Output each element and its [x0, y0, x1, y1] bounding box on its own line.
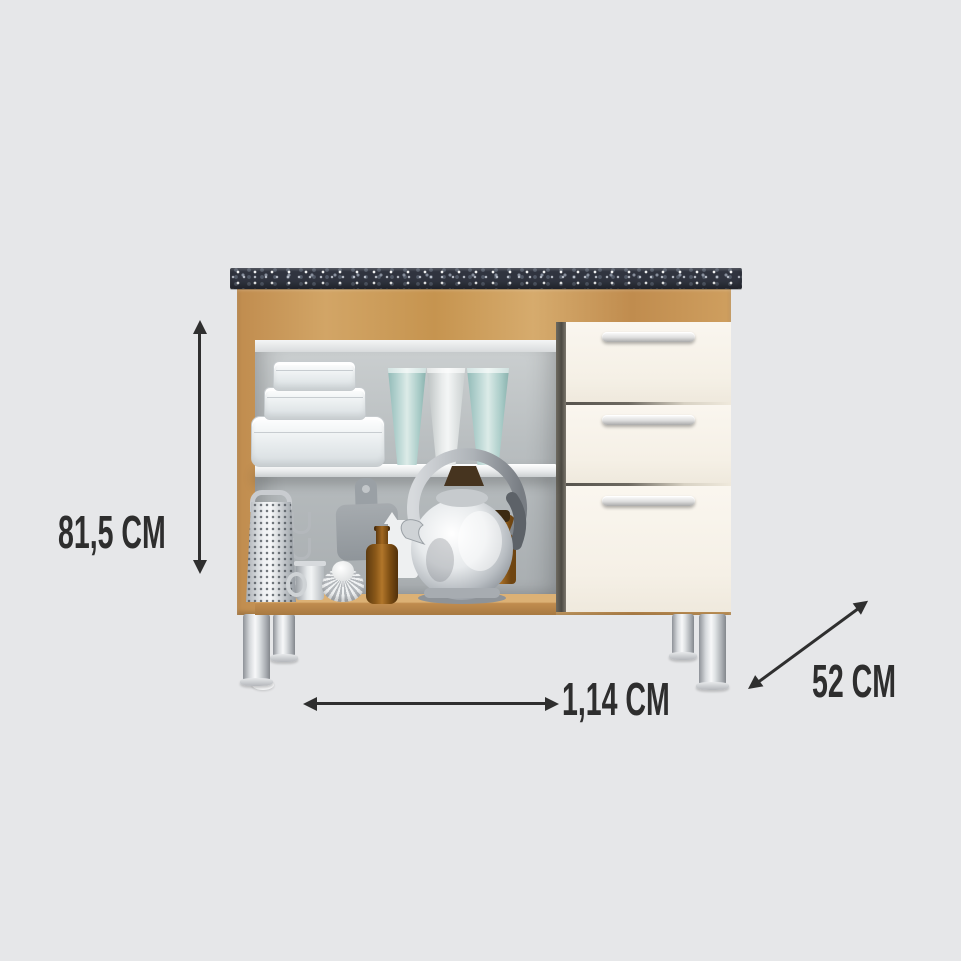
height-label: 81,5 CM: [58, 509, 166, 555]
bottle-body: [366, 544, 398, 604]
kettle-handle-grip: [512, 498, 520, 544]
drawer-2: [566, 405, 731, 483]
amber-bottle: [366, 526, 398, 604]
drawer-1-handle: [602, 332, 695, 342]
food-container-large: [251, 416, 385, 467]
width-label: 1,14 CM: [562, 676, 670, 722]
kettle-base: [424, 588, 500, 598]
food-container-small: [273, 361, 356, 391]
drawer-3-handle: [602, 496, 695, 506]
arrow-down-icon: [193, 560, 207, 574]
arrow-up-icon: [193, 320, 207, 334]
kettle-shade: [426, 538, 454, 582]
leg-left-front: [243, 614, 270, 680]
kettle-highlight: [458, 511, 502, 571]
depth-label: 52 CM: [812, 658, 896, 704]
kettle-knob: [444, 466, 484, 486]
arrow-right-icon: [545, 697, 559, 711]
leg-right-front: [699, 614, 726, 684]
cabinet-divider-gap: [556, 322, 566, 612]
leg-right-back: [672, 614, 694, 654]
silver-creamer: [296, 564, 324, 600]
chrome-kettle: [396, 446, 530, 606]
food-container-medium: [264, 387, 366, 420]
leg-left-back: [273, 614, 295, 656]
drawer-stack: [566, 322, 731, 612]
fluted-tart-pan: [322, 568, 364, 602]
drawer-3: [566, 486, 731, 612]
product-dimension-image: 81,5 CM 1,14 CM 52 CM: [0, 0, 961, 961]
height-arrow-line: [198, 333, 201, 562]
arrow-left-icon: [303, 697, 317, 711]
width-arrow-line: [317, 702, 545, 705]
drawer-1: [566, 322, 731, 402]
drawer-2-handle: [602, 415, 695, 425]
kettle-lid: [436, 489, 488, 507]
granite-countertop: [230, 268, 742, 289]
